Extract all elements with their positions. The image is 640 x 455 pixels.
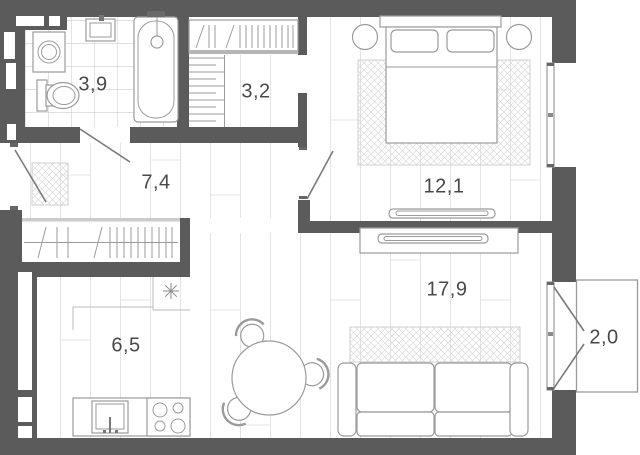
room-label-bedroom: 12,1 bbox=[424, 176, 465, 199]
room-label-wardrobe: 3,2 bbox=[241, 81, 270, 104]
sofa-seat-cushion bbox=[357, 412, 434, 436]
wall-bath-south-left bbox=[25, 127, 80, 143]
faucet-handle bbox=[103, 430, 106, 433]
shaft-niche bbox=[49, 16, 60, 26]
room-label-living: 17,9 bbox=[427, 279, 468, 302]
pillow bbox=[447, 30, 494, 52]
shaft-niche bbox=[18, 272, 32, 390]
wall-left-mid bbox=[0, 210, 22, 262]
wall-wardrobe-east-lower bbox=[298, 93, 307, 147]
floor-plan-drawing bbox=[0, 0, 640, 455]
wall-top bbox=[0, 0, 576, 17]
living-window-mullion bbox=[548, 332, 553, 336]
room-label-hallway: 7,4 bbox=[141, 172, 170, 195]
tv bbox=[378, 234, 488, 243]
shaft-niche bbox=[6, 63, 16, 89]
faucet-handle bbox=[115, 430, 118, 433]
shower-head bbox=[151, 36, 163, 48]
wall-wardrobe-east-upper bbox=[298, 17, 307, 55]
window-jamb bbox=[547, 164, 554, 167]
door-jamb bbox=[299, 147, 307, 150]
wall-bath-wardrobe bbox=[177, 17, 189, 127]
room-label-balcony: 2,0 bbox=[589, 327, 618, 350]
doormat bbox=[32, 163, 68, 205]
sliding-door-track bbox=[22, 218, 180, 222]
rail-bar bbox=[189, 50, 298, 54]
sofa-seat-cushion bbox=[435, 412, 512, 436]
hallway-wardrobe bbox=[22, 218, 180, 258]
sofa-back-cushion bbox=[357, 363, 434, 412]
nightstand bbox=[507, 25, 532, 50]
tv-low-console bbox=[389, 209, 495, 218]
sofa-back-cushion bbox=[435, 363, 512, 412]
bedroom-window-mullion bbox=[548, 113, 553, 117]
shelves bbox=[189, 55, 225, 127]
dining-table bbox=[232, 341, 306, 415]
window-jamb bbox=[547, 387, 554, 390]
bed-headboard bbox=[380, 16, 501, 27]
ceiling-point-symbol bbox=[163, 283, 179, 299]
room-label-bathroom: 3,9 bbox=[78, 74, 107, 97]
room-label-kitchen: 6,5 bbox=[111, 335, 140, 358]
door-jamb bbox=[10, 206, 18, 210]
wall-right-3 bbox=[552, 390, 576, 455]
floor-plan: 3,9 3,2 7,4 12,1 6,5 17,9 2,0 bbox=[0, 0, 640, 455]
shower-fixture bbox=[147, 11, 165, 17]
wall-bottom bbox=[0, 438, 576, 455]
shaft-niche bbox=[4, 32, 15, 59]
window-jamb bbox=[547, 282, 554, 285]
bathtub bbox=[134, 17, 178, 122]
wall-right-1 bbox=[552, 0, 576, 63]
wall-bath-south-right bbox=[130, 127, 307, 143]
door-jamb bbox=[10, 143, 18, 147]
pillow bbox=[391, 30, 438, 52]
sink-faucet bbox=[99, 15, 104, 21]
shaft-niche bbox=[16, 16, 44, 26]
nightstand bbox=[353, 25, 378, 50]
shaft-niche bbox=[18, 397, 32, 422]
door-jamb bbox=[299, 196, 307, 199]
living-rug bbox=[350, 327, 520, 362]
window-jamb bbox=[547, 63, 554, 66]
wall-bedroom-door-corner bbox=[298, 200, 310, 233]
sofa-armrest bbox=[510, 363, 528, 436]
shaft-niche bbox=[18, 426, 32, 438]
shaft-niche bbox=[7, 124, 16, 140]
sofa-armrest bbox=[338, 363, 356, 436]
